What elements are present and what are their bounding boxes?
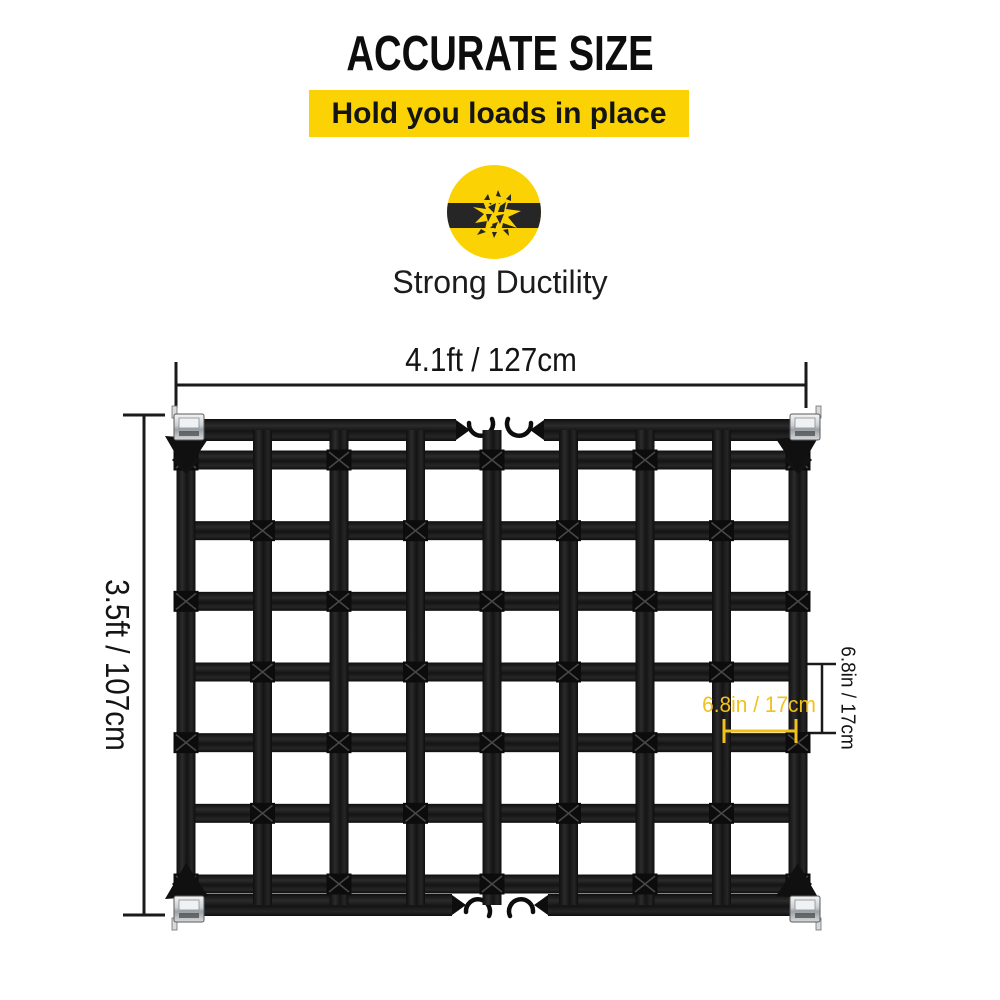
cell-width-dimension-label: 6.8in / 17cm (702, 692, 816, 718)
s-hook-icon (509, 899, 533, 916)
cam-buckle (172, 406, 204, 440)
height-dimension-label: 3.5ft / 107cm (98, 579, 136, 751)
cam-buckle (172, 896, 204, 930)
net-grid (174, 430, 811, 905)
cam-buckle (790, 896, 821, 930)
infographic-page: ACCURATE SIZE Hold you loads in place (0, 0, 1000, 1000)
s-hook-icon (507, 419, 531, 436)
width-dimension-label: 4.1ft / 127cm (405, 341, 577, 379)
cell-height-dimension-label: 6.8in / 17cm (836, 646, 859, 750)
cargo-net-illustration (0, 0, 1000, 1000)
cam-buckle (790, 406, 821, 440)
